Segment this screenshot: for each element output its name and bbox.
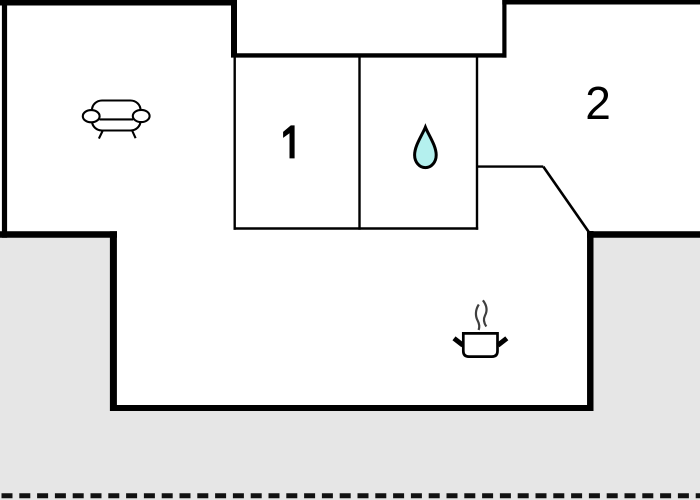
svg-text:2: 2 bbox=[585, 77, 611, 129]
